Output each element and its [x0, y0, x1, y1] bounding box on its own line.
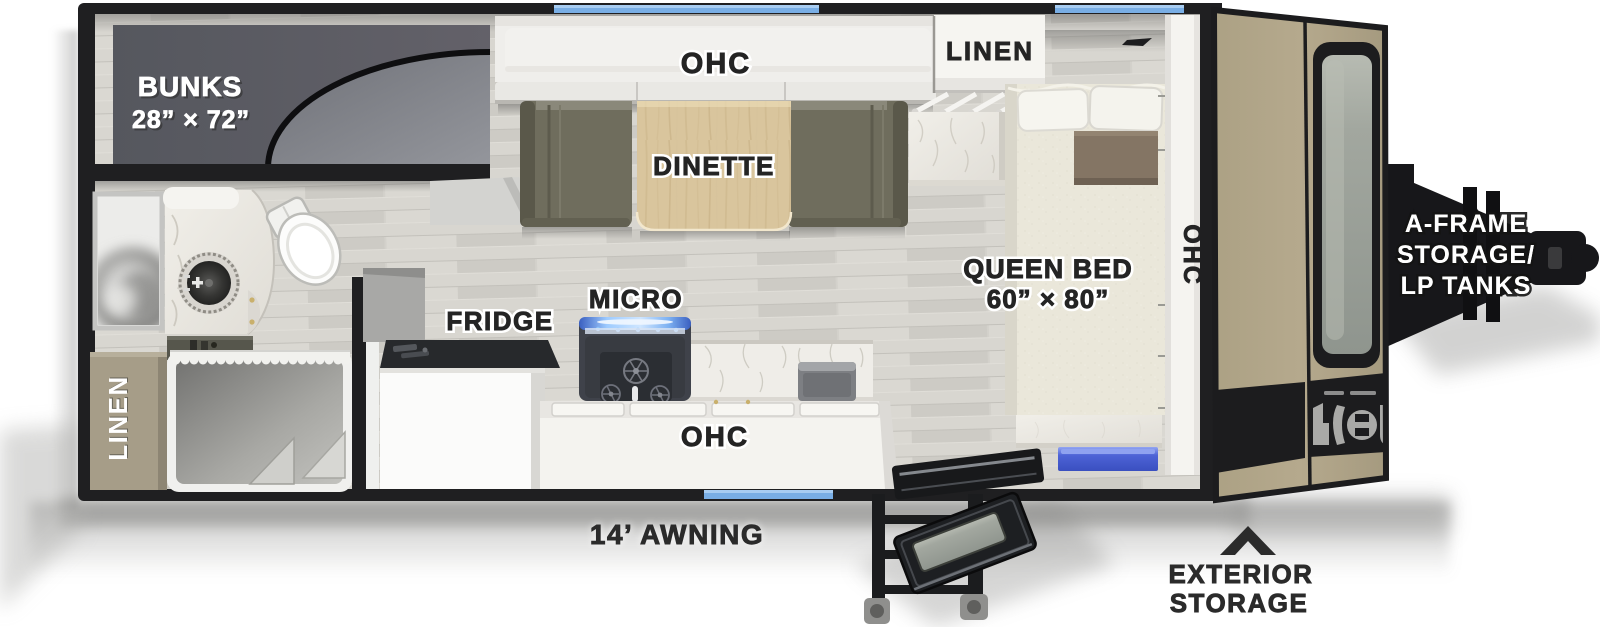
- svg-text:BUNKS: BUNKS: [138, 71, 243, 102]
- svg-text:60” × 80”: 60” × 80”: [987, 284, 1109, 314]
- svg-text:OHC: OHC: [681, 48, 751, 80]
- svg-text:OHC: OHC: [681, 421, 749, 452]
- svg-text:STORAGE/: STORAGE/: [1397, 241, 1535, 269]
- svg-text:QUEEN BED: QUEEN BED: [963, 254, 1133, 284]
- svg-text:FRIDGE: FRIDGE: [446, 306, 553, 336]
- svg-text:STORAGE: STORAGE: [1170, 588, 1309, 618]
- svg-text:LINEN: LINEN: [946, 36, 1034, 66]
- svg-text:14’ AWNING: 14’ AWNING: [590, 519, 764, 550]
- svg-text:A-FRAME: A-FRAME: [1405, 210, 1527, 238]
- svg-text:28” × 72”: 28” × 72”: [132, 106, 250, 134]
- svg-text:LINEN: LINEN: [103, 375, 133, 461]
- svg-text:DINETTE: DINETTE: [653, 151, 775, 181]
- svg-text:LP TANKS: LP TANKS: [1401, 272, 1532, 300]
- svg-text:MICRO: MICRO: [589, 284, 683, 314]
- svg-text:EXTERIOR: EXTERIOR: [1169, 559, 1314, 589]
